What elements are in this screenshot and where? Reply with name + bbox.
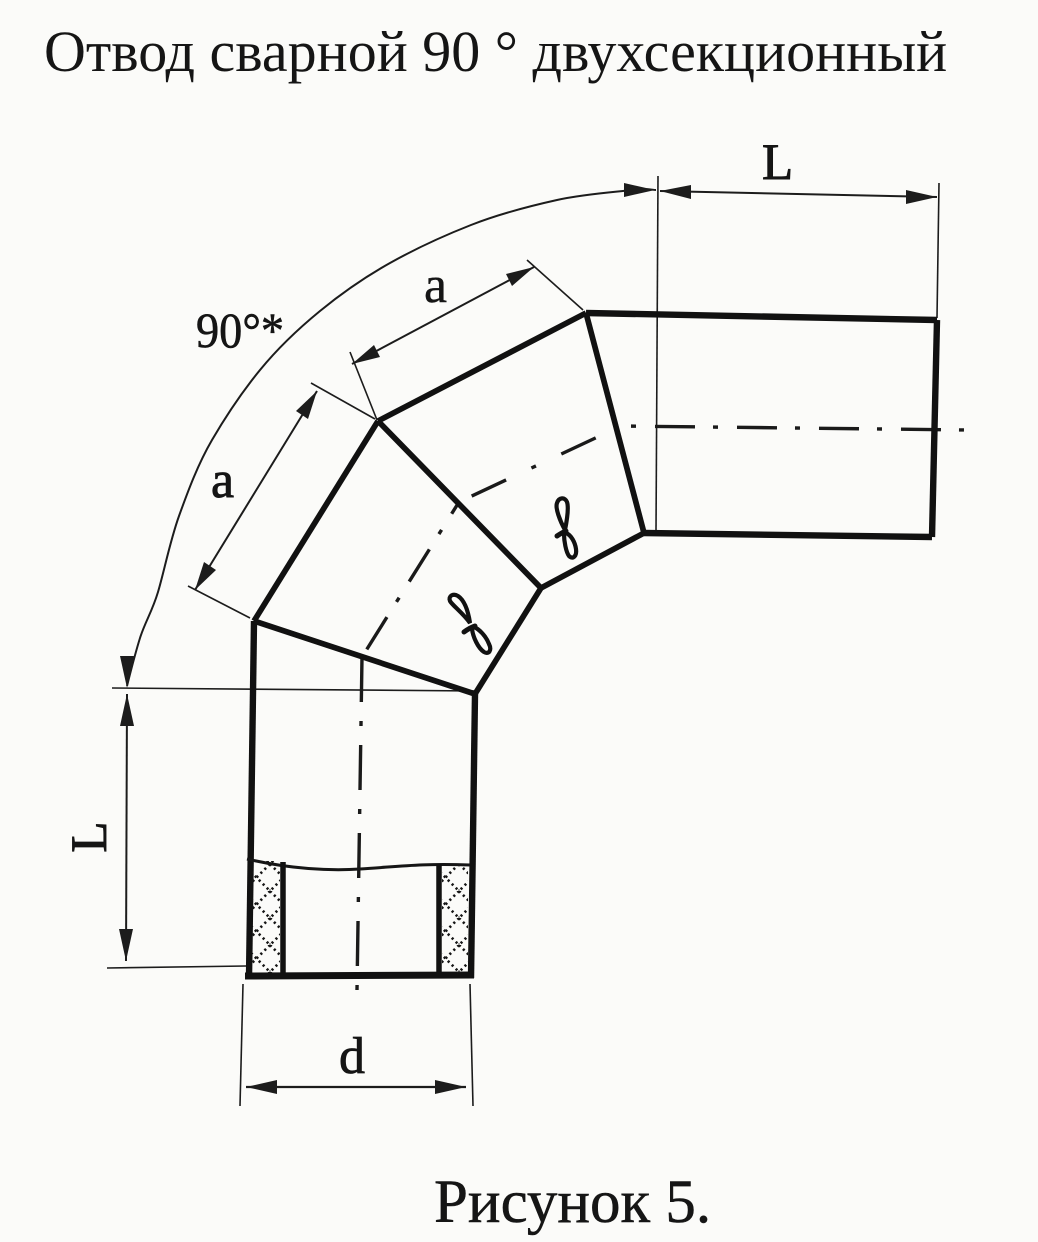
svg-text:L: L — [762, 135, 793, 191]
svg-text:Отвод сварной 90 ° двухсекцион: Отвод сварной 90 ° двухсекционный — [44, 19, 947, 84]
svg-text:Рисунок 5.: Рисунок 5. — [434, 1169, 711, 1236]
svg-text:d: d — [339, 1028, 365, 1085]
svg-text:90°*: 90°* — [196, 302, 284, 358]
svg-text:a: a — [424, 257, 447, 314]
svg-text:a: a — [211, 452, 234, 509]
svg-text:L: L — [62, 821, 118, 852]
